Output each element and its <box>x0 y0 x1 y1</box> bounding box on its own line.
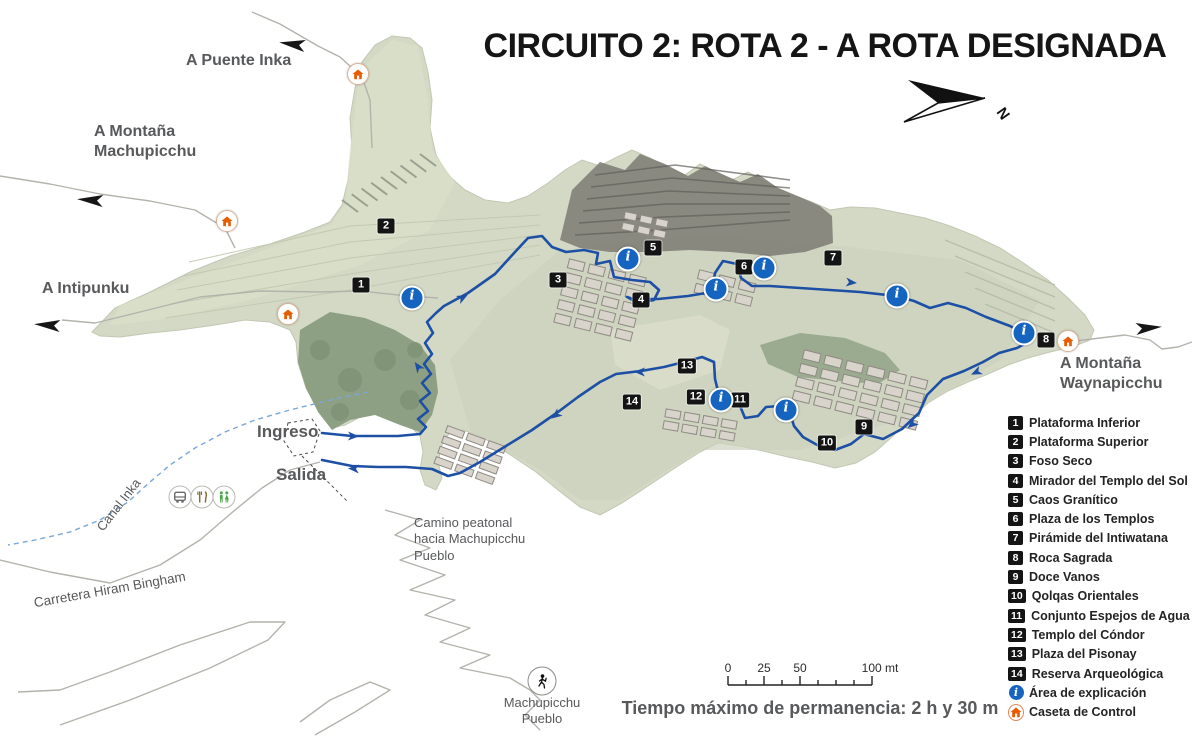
scale-label: 0 <box>725 661 732 675</box>
legend-item-label: Mirador del Templo del Sol <box>1029 474 1188 488</box>
marker-badge-11: 11 <box>731 393 749 408</box>
legend-number-badge: 5 <box>1008 493 1023 507</box>
legend-item-label: Roca Sagrada <box>1029 551 1112 565</box>
legend-number-badge: 12 <box>1008 628 1026 642</box>
legend-item-label: Doce Vanos <box>1029 570 1100 584</box>
legend-item-label: Pirámide del Intiwatana <box>1029 531 1168 545</box>
legend-item: 8 Roca Sagrada <box>1008 548 1190 567</box>
legend-number-badge: 9 <box>1008 570 1023 584</box>
legend-item: 3 Foso Seco <box>1008 452 1190 471</box>
legend-number-badge: 2 <box>1008 435 1023 449</box>
info-point-icon: i <box>704 277 729 302</box>
legend-item-label: Plaza del Pisonay <box>1032 647 1137 661</box>
map-label-canal-inka: Canal Inka <box>94 476 145 535</box>
max-stay-note: Tiempo máximo de permanencia: 2 h y 30 m <box>600 698 1020 719</box>
machu-picchu-circuit-map: N CIRCUITO 2: ROTA 2 - A ROTA DESIGNADA … <box>0 0 1200 750</box>
service-icon-bus <box>169 486 192 509</box>
scale-label: 100 mt <box>862 661 899 675</box>
legend-item: 14 Reserva Arqueológica <box>1008 664 1190 683</box>
legend-item-label: Foso Seco <box>1029 454 1092 468</box>
legend-number-badge: 1 <box>1008 416 1023 430</box>
legend-number-badge: 13 <box>1008 647 1026 661</box>
legend-item: Caseta de Control <box>1008 702 1190 721</box>
control-house-icon <box>352 69 364 80</box>
control-point-icon <box>347 63 369 85</box>
legend-item: 12 Templo del Cóndor <box>1008 625 1190 644</box>
legend-item: 13 Plaza del Pisonay <box>1008 645 1190 664</box>
legend-item-label: Templo del Cóndor <box>1032 628 1145 642</box>
marker-badge-10: 10 <box>818 436 836 451</box>
marker-badge-3: 3 <box>550 273 567 288</box>
service-icon-restaurant <box>191 486 214 509</box>
legend-item: 5 Caos Granítico <box>1008 490 1190 509</box>
info-point-icon: i <box>1012 321 1037 346</box>
info-point-icon: i <box>400 286 425 311</box>
legend-item-label: Plaza de los Templos <box>1029 512 1155 526</box>
control-point-icon <box>216 210 238 232</box>
legend-number-badge: 6 <box>1008 512 1023 526</box>
info-point-icon: i <box>774 398 799 423</box>
control-point-icon <box>277 303 299 325</box>
info-point-icon: i <box>709 388 734 413</box>
legend-item-label: Reserva Arqueológica <box>1032 667 1164 681</box>
legend-item: 11 Conjunto Espejos de Agua <box>1008 606 1190 625</box>
control-house-icon <box>282 309 294 320</box>
marker-badge-2: 2 <box>378 219 395 234</box>
marker-badge-8: 8 <box>1038 333 1055 348</box>
map-label-carretera-hiram-bingham: Carretera Hiram Bingham <box>33 569 187 612</box>
legend-item-label: Plataforma Superior <box>1029 435 1148 449</box>
legend-item: 10 Qolqas Orientales <box>1008 587 1190 606</box>
legend-number-badge: 8 <box>1008 551 1023 565</box>
legend: 1 Plataforma Inferior 2 Plataforma Super… <box>1008 413 1190 722</box>
legend-item-label: Caseta de Control <box>1029 705 1136 719</box>
control-house-icon <box>1062 336 1074 347</box>
scale-label: 50 <box>793 661 806 675</box>
legend-item: 4 Mirador del Templo del Sol <box>1008 471 1190 490</box>
legend-item-label: Plataforma Inferior <box>1029 416 1140 430</box>
map-label-a-puente-inka: A Puente Inka <box>186 51 291 71</box>
marker-badge-9: 9 <box>856 420 873 435</box>
legend-item: 2 Plataforma Superior <box>1008 432 1190 451</box>
info-point-icon: i <box>885 284 910 309</box>
control-point-icon <box>1057 330 1079 352</box>
legend-item: 9 Doce Vanos <box>1008 567 1190 586</box>
legend-number-badge: 11 <box>1008 609 1025 623</box>
marker-badge-4: 4 <box>633 293 650 308</box>
control-house-icon <box>221 216 233 227</box>
info-point-icon: i <box>616 247 641 272</box>
map-label-a-montana-machupicchu: A Montaña Machupicchu <box>94 122 196 162</box>
map-label-camino-peatonal: Camino peatonal hacia Machupicchu Pueblo <box>414 515 525 564</box>
legend-number-badge: 4 <box>1008 474 1023 488</box>
scale-label: 25 <box>757 661 770 675</box>
legend-number-badge: 3 <box>1008 454 1023 468</box>
legend-item: 1 Plataforma Inferior <box>1008 413 1190 432</box>
legend-item: i Área de explicación <box>1008 683 1190 702</box>
legend-item-label: Caos Granítico <box>1029 493 1118 507</box>
map-label-machupicchu-pueblo: Machupicchu Pueblo <box>482 695 602 728</box>
service-icon-toilets <box>213 486 236 509</box>
legend-number-badge: 14 <box>1008 667 1026 681</box>
marker-badge-12: 12 <box>687 390 705 405</box>
marker-badge-6: 6 <box>736 260 753 275</box>
info-point-icon: i <box>752 256 777 281</box>
marker-badge-14: 14 <box>623 395 641 410</box>
map-label-ingreso: Ingreso <box>257 421 318 442</box>
marker-badge-7: 7 <box>825 251 842 266</box>
marker-badge-5: 5 <box>645 241 662 256</box>
legend-item-label: Qolqas Orientales <box>1032 589 1139 603</box>
legend-number-badge: 7 <box>1008 531 1023 545</box>
map-label-salida: Salida <box>276 464 326 485</box>
legend-item-label: Conjunto Espejos de Agua <box>1031 609 1190 623</box>
map-label-a-intipunku: A Intipunku <box>42 279 129 299</box>
map-label-a-montana-waynapicchu: A Montaña Waynapicchu <box>1060 354 1163 394</box>
legend-item-label: Área de explicación <box>1029 686 1146 700</box>
hiker-icon <box>528 667 557 696</box>
legend-item: 7 Pirámide del Intiwatana <box>1008 529 1190 548</box>
marker-badge-13: 13 <box>678 359 696 374</box>
marker-badge-1: 1 <box>353 278 370 293</box>
legend-item: 6 Plaza de los Templos <box>1008 509 1190 528</box>
legend-number-badge: 10 <box>1008 589 1026 603</box>
